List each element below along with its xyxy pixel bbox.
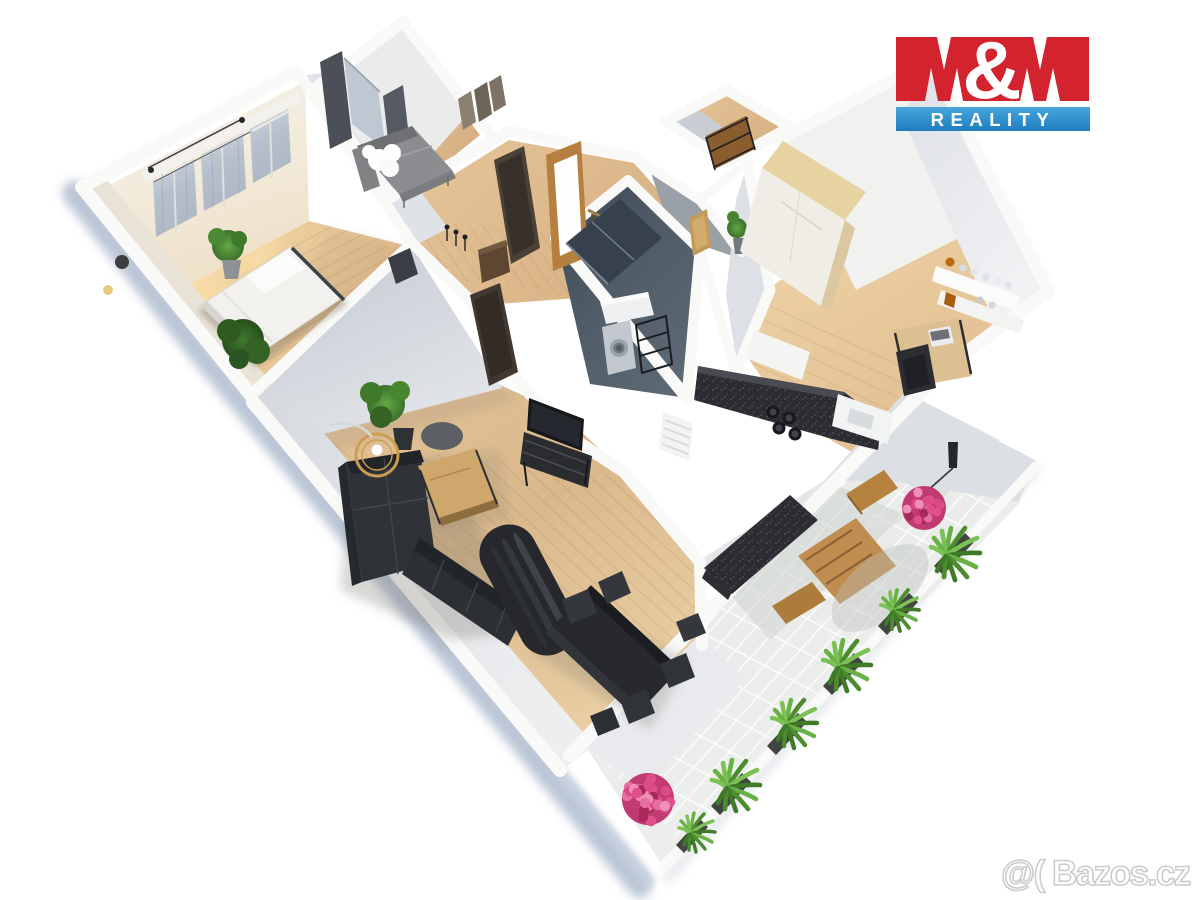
svg-text:@( Bazos.cz: @( Bazos.cz [1001,854,1191,893]
svg-text:&: & [962,25,1021,116]
svg-text:REALITY: REALITY [931,109,1056,130]
